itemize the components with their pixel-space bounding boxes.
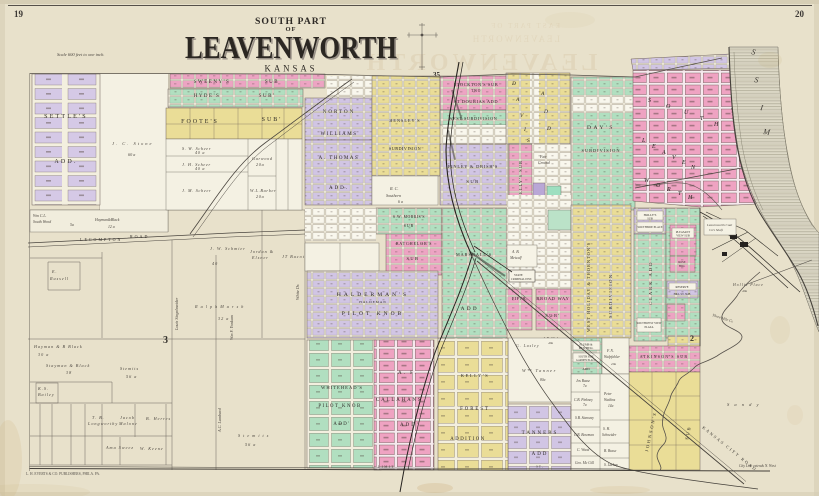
svg-text:C.B. Pinkney: C.B. Pinkney <box>574 398 593 402</box>
svg-text:Scale 600 feet to one inch.: Scale 600 feet to one inch. <box>57 52 105 57</box>
svg-text:WEST HOLIDAY & THORNTON'S: WEST HOLIDAY & THORNTON'S <box>586 242 591 332</box>
svg-text:J. C. Stone: J. C. Stone <box>112 141 154 146</box>
svg-text:12 a: 12 a <box>108 225 115 229</box>
svg-text:R: R <box>666 187 671 193</box>
svg-text:ROAD: ROAD <box>130 234 149 239</box>
svg-text:S t e m i t s: S t e m i t s <box>238 433 269 438</box>
svg-text:Ama Sweez: Ama Sweez <box>105 445 134 450</box>
svg-text:Stemits: Stemits <box>120 366 139 371</box>
svg-text:Hayman&Black: Hayman&Black <box>94 218 120 222</box>
svg-text:TWO: TWO <box>471 89 481 93</box>
svg-text:3: 3 <box>163 335 168 346</box>
svg-text:ADD: ADD <box>532 452 549 457</box>
svg-text:7a: 7a <box>583 403 587 407</box>
svg-text:U: U <box>684 110 689 116</box>
svg-text:ADD': ADD' <box>400 423 420 428</box>
svg-text:PILOT KNOB: PILOT KNOB <box>342 311 404 317</box>
svg-text:HYDE'S: HYDE'S <box>194 94 221 99</box>
svg-text:F. N.: F. N. <box>606 349 614 353</box>
svg-text:ADD: ADD <box>582 367 590 371</box>
svg-text:S. H.: S. H. <box>603 427 610 431</box>
svg-text:Geo. Mc Gill: Geo. Mc Gill <box>575 461 594 465</box>
svg-text:20a: 20a <box>256 162 264 167</box>
svg-text:ADD.: ADD. <box>54 159 77 165</box>
svg-text:SUB: SUB <box>406 256 419 261</box>
svg-text:D: D <box>543 109 548 115</box>
svg-text:W. Keene: W. Keene <box>140 446 164 451</box>
svg-text:19: 19 <box>14 9 24 19</box>
svg-text:6 a: 6 a <box>398 199 403 204</box>
svg-text:GARDEN PLACE: GARDEN PLACE <box>576 359 596 362</box>
svg-text:LEAVENWORTH: LEAVENWORTH <box>185 29 397 65</box>
svg-text:ADD': ADD' <box>333 422 350 427</box>
svg-text:Walpfahler: Walpfahler <box>604 355 620 359</box>
svg-text:ADD: ADD <box>461 307 479 312</box>
svg-text:A. THOMAS: A. THOMAS <box>319 156 360 161</box>
svg-text:RESERVE: RESERVE <box>675 285 688 289</box>
svg-text:ADDITION: ADDITION <box>450 437 485 442</box>
svg-text:JT Bacot: JT Bacot <box>282 254 305 259</box>
svg-text:56 a: 56 a <box>126 374 137 379</box>
svg-text:LECOMPTON: LECOMPTON <box>80 237 122 242</box>
svg-text:ATKINSON'S SUB: ATKINSON'S SUB <box>640 354 689 359</box>
svg-text:T. B.: T. B. <box>92 415 105 420</box>
svg-text:KANSAS: KANSAS <box>265 64 318 74</box>
svg-text:38: 38 <box>66 370 72 375</box>
svg-text:Louis Siegelmeider: Louis Siegelmeider <box>174 297 179 331</box>
svg-text:South Wood: South Wood <box>33 220 51 224</box>
svg-text:CRIMINAL INST.: CRIMINAL INST. <box>511 278 532 281</box>
svg-text:Hollis Place: Hollis Place <box>732 283 764 287</box>
svg-text:ST.: ST. <box>536 465 544 469</box>
svg-text:Stayman & Black: Stayman & Black <box>46 363 90 368</box>
svg-text:Fair: Fair <box>539 155 547 159</box>
svg-text:S: S <box>527 138 530 144</box>
svg-text:5a: 5a <box>70 223 74 227</box>
svg-text:W™ Tanner: W™ Tanner <box>522 368 557 373</box>
svg-text:Southern: Southern <box>386 193 401 198</box>
svg-text:7a: 7a <box>583 384 587 388</box>
svg-text:L: L <box>641 138 646 144</box>
svg-text:FOOTE'S: FOOTE'S <box>181 119 219 125</box>
svg-text:2: 2 <box>690 334 694 343</box>
svg-text:WEST SUBDIVISION: WEST SUBDIVISION <box>449 116 498 121</box>
svg-text:CLARK ADD: CLARK ADD <box>648 261 653 305</box>
svg-text:A. B.: A. B. <box>511 250 520 254</box>
svg-text:R. C.: R. C. <box>389 186 399 191</box>
svg-text:30 a: 30 a <box>38 352 49 357</box>
svg-text:BATCHELOR'S: BATCHELOR'S <box>396 241 433 246</box>
svg-text:80a: 80a <box>540 378 546 382</box>
svg-text:20a: 20a <box>611 362 616 366</box>
svg-text:FINLEY & DRISH'S: FINLEY & DRISH'S <box>448 164 498 169</box>
svg-text:B. Busse: B. Busse <box>604 449 617 453</box>
svg-text:SUB: SUB <box>265 80 279 85</box>
svg-text:40 a: 40 a <box>195 166 205 171</box>
svg-text:D: D <box>546 126 551 132</box>
svg-text:SUB: SUB <box>404 224 414 228</box>
svg-text:SUBDIVISION: SUBDIVISION <box>581 148 620 153</box>
svg-text:W.L.Barber: W.L.Barber <box>250 188 276 193</box>
svg-text:SWEENY'S: SWEENY'S <box>194 80 231 85</box>
svg-text:HOLLY'S: HOLLY'S <box>644 213 657 217</box>
svg-text:G. Lasley: G. Lasley <box>516 344 540 348</box>
svg-text:HILL: HILL <box>679 265 686 268</box>
svg-text:J. W. Schmier: J. W. Schmier <box>210 246 246 251</box>
svg-text:Leavenworth Coal: Leavenworth Coal <box>706 223 732 227</box>
svg-text:A: A <box>515 97 520 103</box>
svg-text:Jacob: Jacob <box>120 415 135 420</box>
svg-text:SUBDIVISION: SUBDIVISION <box>608 273 613 318</box>
svg-text:40a: 40a <box>548 341 553 345</box>
svg-text:Schneider: Schneider <box>602 433 617 437</box>
svg-text:Ground: Ground <box>538 161 550 165</box>
svg-text:STOCKTON'S SUB: STOCKTON'S SUB <box>454 82 499 87</box>
svg-text:Hayman & B Black: Hayman & B Black <box>33 344 83 349</box>
svg-text:40: 40 <box>212 261 218 266</box>
svg-text:PILOT KNOB: PILOT KNOB <box>318 404 361 409</box>
svg-text:KELLY'S SUB: KELLY'S SUB <box>518 160 523 198</box>
svg-text:HILL ST. SUB: HILL ST. SUB <box>674 293 691 296</box>
svg-text:STATE: STATE <box>514 273 523 277</box>
svg-text:S: S <box>648 98 651 104</box>
svg-text:DAY'S: DAY'S <box>587 125 615 131</box>
svg-text:NORTON: NORTON <box>323 110 355 115</box>
svg-text:H: H <box>713 122 719 128</box>
svg-text:HALDEMAN: HALDEMAN <box>359 300 386 304</box>
svg-text:ADD.: ADD. <box>329 186 349 191</box>
svg-text:S a n d y: S a n d y <box>727 402 761 407</box>
svg-text:E: E <box>681 160 686 166</box>
svg-text:Longworthy: Longworthy <box>87 421 118 426</box>
svg-text:20a: 20a <box>256 194 264 199</box>
svg-text:SUB: SUB <box>647 218 653 221</box>
svg-text:LIMIT: LIMIT <box>378 465 395 469</box>
svg-text:E.: E. <box>51 269 58 274</box>
svg-text:E: E <box>651 144 656 150</box>
svg-text:Bailey: Bailey <box>38 392 55 397</box>
svg-text:SUB': SUB' <box>259 94 276 99</box>
svg-text:K.S.: K.S. <box>37 386 49 391</box>
svg-text:Co's Shaft: Co's Shaft <box>709 228 724 232</box>
svg-text:SUB': SUB' <box>545 313 560 318</box>
svg-text:A: A <box>661 150 666 156</box>
svg-text:R a l p h M a r s h: R a l p h M a r s h <box>194 304 244 309</box>
svg-text:City Line extends N. West: City Line extends N. West <box>739 464 777 468</box>
svg-text:HENSLEY'S: HENSLEY'S <box>389 118 420 123</box>
svg-text:60 a: 60 a <box>128 152 135 157</box>
svg-text:LEAVENWORTH: LEAVENWORTH <box>471 34 560 44</box>
svg-text:Metcalf: Metcalf <box>509 256 523 260</box>
svg-text:A.C. Lambard: A.C. Lambard <box>217 407 222 433</box>
svg-text:SOUTHWEST VIEW: SOUTHWEST VIEW <box>637 322 662 325</box>
svg-text:Watkins: Watkins <box>604 398 616 402</box>
svg-text:KELLY'S: KELLY'S <box>461 373 489 378</box>
svg-text:VIEW SUB: VIEW SUB <box>676 235 690 238</box>
svg-text:A. F.: A. F. <box>398 371 418 376</box>
svg-text:Wm C.L.: Wm C.L. <box>33 214 46 218</box>
svg-text:SETTLE'S: SETTLE'S <box>44 114 88 120</box>
svg-text:WILLIAMS: WILLIAMS <box>321 132 358 137</box>
svg-text:Elsner: Elsner <box>251 255 269 260</box>
svg-text:Malone: Malone <box>118 421 138 426</box>
svg-text:C. Wood: C. Wood <box>577 448 589 452</box>
svg-text:ROSE: ROSE <box>678 261 685 264</box>
svg-text:O: O <box>666 104 671 110</box>
svg-text:Peter: Peter <box>603 392 612 396</box>
svg-text:Wm F. Yonkum: Wm F. Yonkum <box>229 315 234 340</box>
svg-text:WHITEHEAD'S: WHITEHEAD'S <box>321 385 363 390</box>
svg-text:White Dr.: White Dr. <box>295 284 300 300</box>
svg-text:56 a: 56 a <box>245 442 256 447</box>
svg-text:H: H <box>687 195 693 201</box>
svg-text:40 a: 40 a <box>195 150 205 155</box>
svg-text:FOREST: FOREST <box>460 407 490 412</box>
svg-text:32 a: 32 a <box>218 316 229 321</box>
svg-text:SUB: SUB <box>466 179 479 184</box>
svg-text:CALLAHANS: CALLAHANS <box>376 398 422 403</box>
svg-text:BROAD WAY: BROAD WAY <box>536 296 569 301</box>
svg-text:PLAZA: PLAZA <box>644 326 653 329</box>
svg-text:D: D <box>511 81 516 87</box>
svg-text:A: A <box>540 91 545 97</box>
svg-text:SUB': SUB' <box>262 117 283 123</box>
svg-text:Russell: Russell <box>49 276 69 281</box>
svg-text:SOUTHSIDE PLACE: SOUTHSIDE PLACE <box>637 226 662 229</box>
svg-text:ST DOURIAS ADD: ST DOURIAS ADD <box>454 99 498 104</box>
svg-text:20: 20 <box>795 9 805 19</box>
svg-text:J. M. Scheer: J. M. Scheer <box>182 188 211 193</box>
svg-text:40a: 40a <box>742 289 747 293</box>
svg-text:TANNERS: TANNERS <box>522 431 559 436</box>
svg-text:S.B. Stanway: S.B. Stanway <box>575 416 594 420</box>
svg-text:B. Herres: B. Herres <box>146 416 171 421</box>
svg-text:Jordan &: Jordan & <box>250 249 274 254</box>
svg-text:SUBDIVISION: SUBDIVISION <box>389 146 421 151</box>
svg-text:14a: 14a <box>608 404 614 408</box>
svg-text:HALDERMAN'S: HALDERMAN'S <box>337 292 409 298</box>
svg-text:Jos Busse: Jos Busse <box>576 379 590 383</box>
svg-text:S.W. MORRIS'S: S.W. MORRIS'S <box>393 215 425 219</box>
